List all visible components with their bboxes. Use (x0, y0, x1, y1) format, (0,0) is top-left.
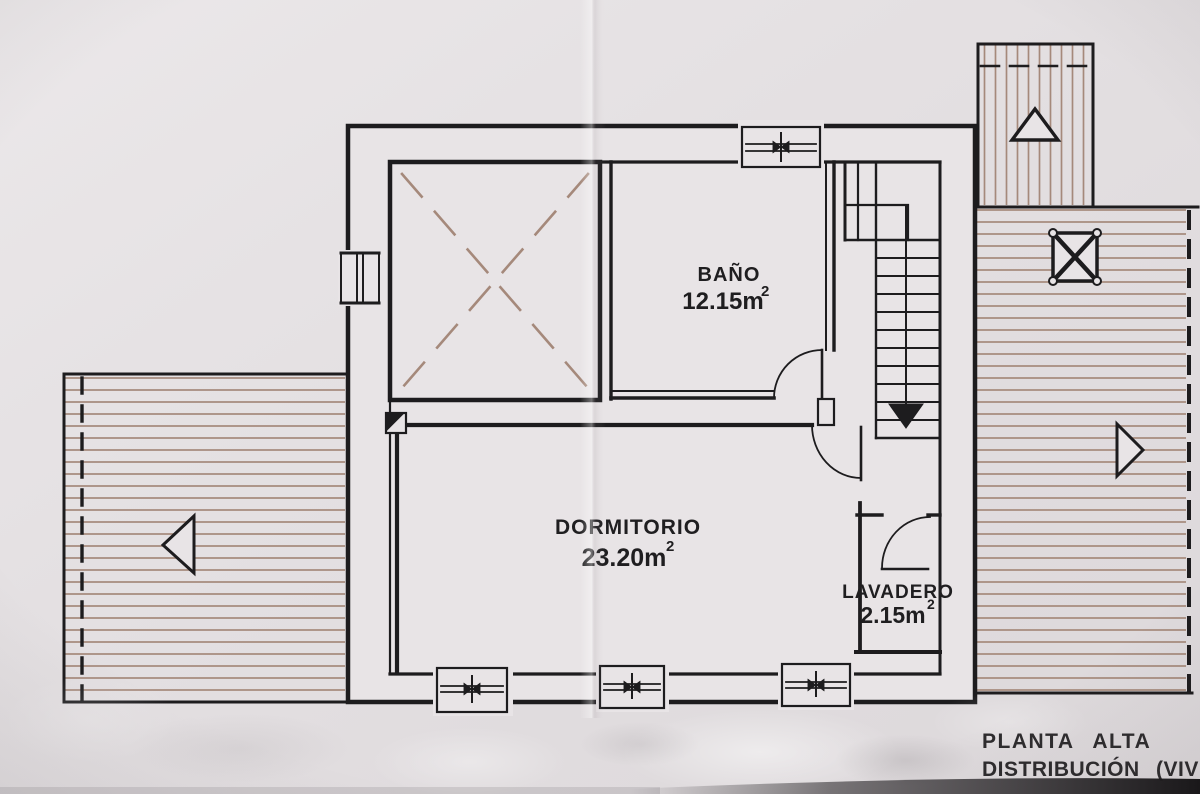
photographed-floor-plan: BAÑO 12.15m 2 DORMITORIO 23.20m 2 LAVADE… (0, 0, 1200, 794)
floor-plan-drawing: BAÑO 12.15m 2 DORMITORIO 23.20m 2 LAVADE… (0, 0, 1200, 794)
photo-vignette (0, 0, 1200, 794)
photo-bottom-edge-left (0, 787, 660, 794)
